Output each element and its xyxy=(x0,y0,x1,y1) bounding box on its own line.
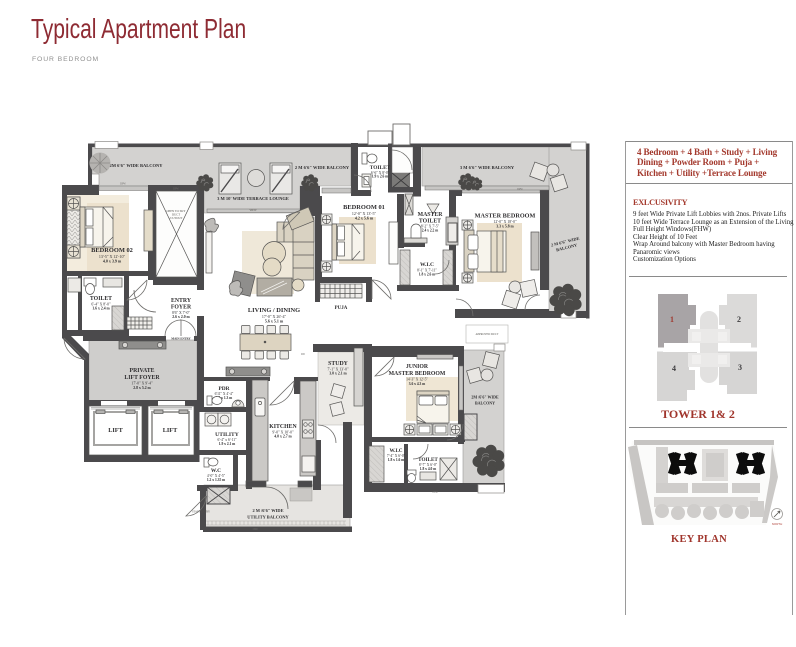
svg-text:2: 2 xyxy=(737,315,741,324)
svg-text:4.0 x 3.9 m: 4.0 x 3.9 m xyxy=(103,259,122,264)
svg-text:LIFT FOYER: LIFT FOYER xyxy=(124,375,160,381)
svg-text:1500: 1500 xyxy=(252,528,258,531)
svg-text:2350: 2350 xyxy=(432,491,438,494)
svg-text:4.2 x 5.6 m: 4.2 x 5.6 m xyxy=(355,216,374,221)
svg-text:2M /6'6" WIDE: 2M /6'6" WIDE xyxy=(471,395,499,400)
svg-text:3.6 x 4.3 m: 3.6 x 4.3 m xyxy=(409,382,425,386)
svg-text:2.6 x 2.0 m: 2.6 x 2.0 m xyxy=(172,315,190,319)
svg-text:4: 4 xyxy=(672,364,676,373)
svg-text:2.8 x 5.2 m: 2.8 x 5.2 m xyxy=(133,386,151,390)
svg-text:1.8 x 2.6 m: 1.8 x 2.6 m xyxy=(419,273,435,277)
svg-text:17'-0" X 9'-4": 17'-0" X 9'-4" xyxy=(131,382,153,386)
svg-text:STUDY: STUDY xyxy=(328,361,348,367)
svg-text:VIEW: VIEW xyxy=(249,209,257,212)
svg-text:JUNIOR: JUNIOR xyxy=(406,364,429,370)
svg-text:MASTER BEDROOM: MASTER BEDROOM xyxy=(389,371,446,377)
svg-text:MASTER BEDROOM: MASTER BEDROOM xyxy=(475,213,536,220)
svg-text:W.I.C: W.I.C xyxy=(420,262,434,268)
svg-text:1.8 x 1.6 m: 1.8 x 1.6 m xyxy=(388,458,404,462)
svg-text:2 M /6'6" WIDE: 2 M /6'6" WIDE xyxy=(252,508,283,513)
svg-text:LIFT: LIFT xyxy=(108,427,123,434)
svg-text:MAIN ENTRY: MAIN ENTRY xyxy=(171,337,191,341)
svg-text:1.2 x 1.35 m: 1.2 x 1.35 m xyxy=(207,478,225,482)
svg-text:STAFF ENTRY: STAFF ENTRY xyxy=(192,511,210,514)
svg-text:4.0 x 2.7 m: 4.0 x 2.7 m xyxy=(274,435,292,439)
svg-text:PUJA: PUJA xyxy=(335,306,348,311)
svg-text:ENTRY: ENTRY xyxy=(171,298,192,304)
svg-text:TOILET: TOILET xyxy=(90,296,112,302)
svg-text:NORTH: NORTH xyxy=(772,522,783,526)
svg-text:PRIVATE: PRIVATE xyxy=(130,368,155,374)
svg-text:3: 3 xyxy=(738,363,742,372)
svg-text:1.9 x 2.6 m: 1.9 x 2.6 m xyxy=(372,175,388,179)
svg-text:1.9 x 2.1 m: 1.9 x 2.1 m xyxy=(219,442,235,446)
svg-text:2.4 x 2.2 m: 2.4 x 2.2 m xyxy=(422,229,438,233)
svg-text:UTILITY BALCONY: UTILITY BALCONY xyxy=(247,514,289,519)
svg-text:LIVING / DINING: LIVING / DINING xyxy=(248,307,300,314)
svg-text:KITCHEN: KITCHEN xyxy=(269,424,297,430)
svg-text:APPROVED DUCT: APPROVED DUCT xyxy=(475,333,498,336)
svg-text:2M 6'6" WIDE BALCONY: 2M 6'6" WIDE BALCONY xyxy=(109,163,163,168)
svg-text:MASTER: MASTER xyxy=(418,212,444,218)
svg-text:900: 900 xyxy=(301,353,306,356)
svg-text:2 M 6'6" WIDE BALCONY: 2 M 6'6" WIDE BALCONY xyxy=(295,165,350,170)
svg-text:3 M 10' WIDE TERRACE LOUNGE: 3 M 10' WIDE TERRACE LOUNGE xyxy=(217,196,289,201)
svg-text:3.3 x 5.8 m: 3.3 x 5.8 m xyxy=(496,224,514,228)
svg-text:3 M 6'6" WIDE BALCONY: 3 M 6'6" WIDE BALCONY xyxy=(460,165,515,170)
svg-text:5.6 x 5.1 m: 5.6 x 5.1 m xyxy=(265,319,284,324)
svg-text:DPW: DPW xyxy=(120,183,126,186)
svg-text:BALCONY: BALCONY xyxy=(475,401,495,406)
svg-text:3.0 x 2.1 m: 3.0 x 2.1 m xyxy=(329,372,347,376)
svg-text:LIFT: LIFT xyxy=(163,427,178,434)
svg-text:1.6 x 2.4 m: 1.6 x 2.4 m xyxy=(92,307,110,311)
svg-text:1.8 x 4.0 m: 1.8 x 4.0 m xyxy=(420,467,436,471)
svg-text:DPW: DPW xyxy=(173,188,179,191)
svg-text:DPW: DPW xyxy=(517,188,523,191)
svg-text:BEDROOM 02: BEDROOM 02 xyxy=(91,247,133,254)
svg-text:/CUTOUT: /CUTOUT xyxy=(170,216,183,220)
svg-text:FOYER: FOYER xyxy=(171,305,192,311)
svg-text:BEDROOM 01: BEDROOM 01 xyxy=(343,204,385,211)
svg-text:1: 1 xyxy=(670,315,674,324)
